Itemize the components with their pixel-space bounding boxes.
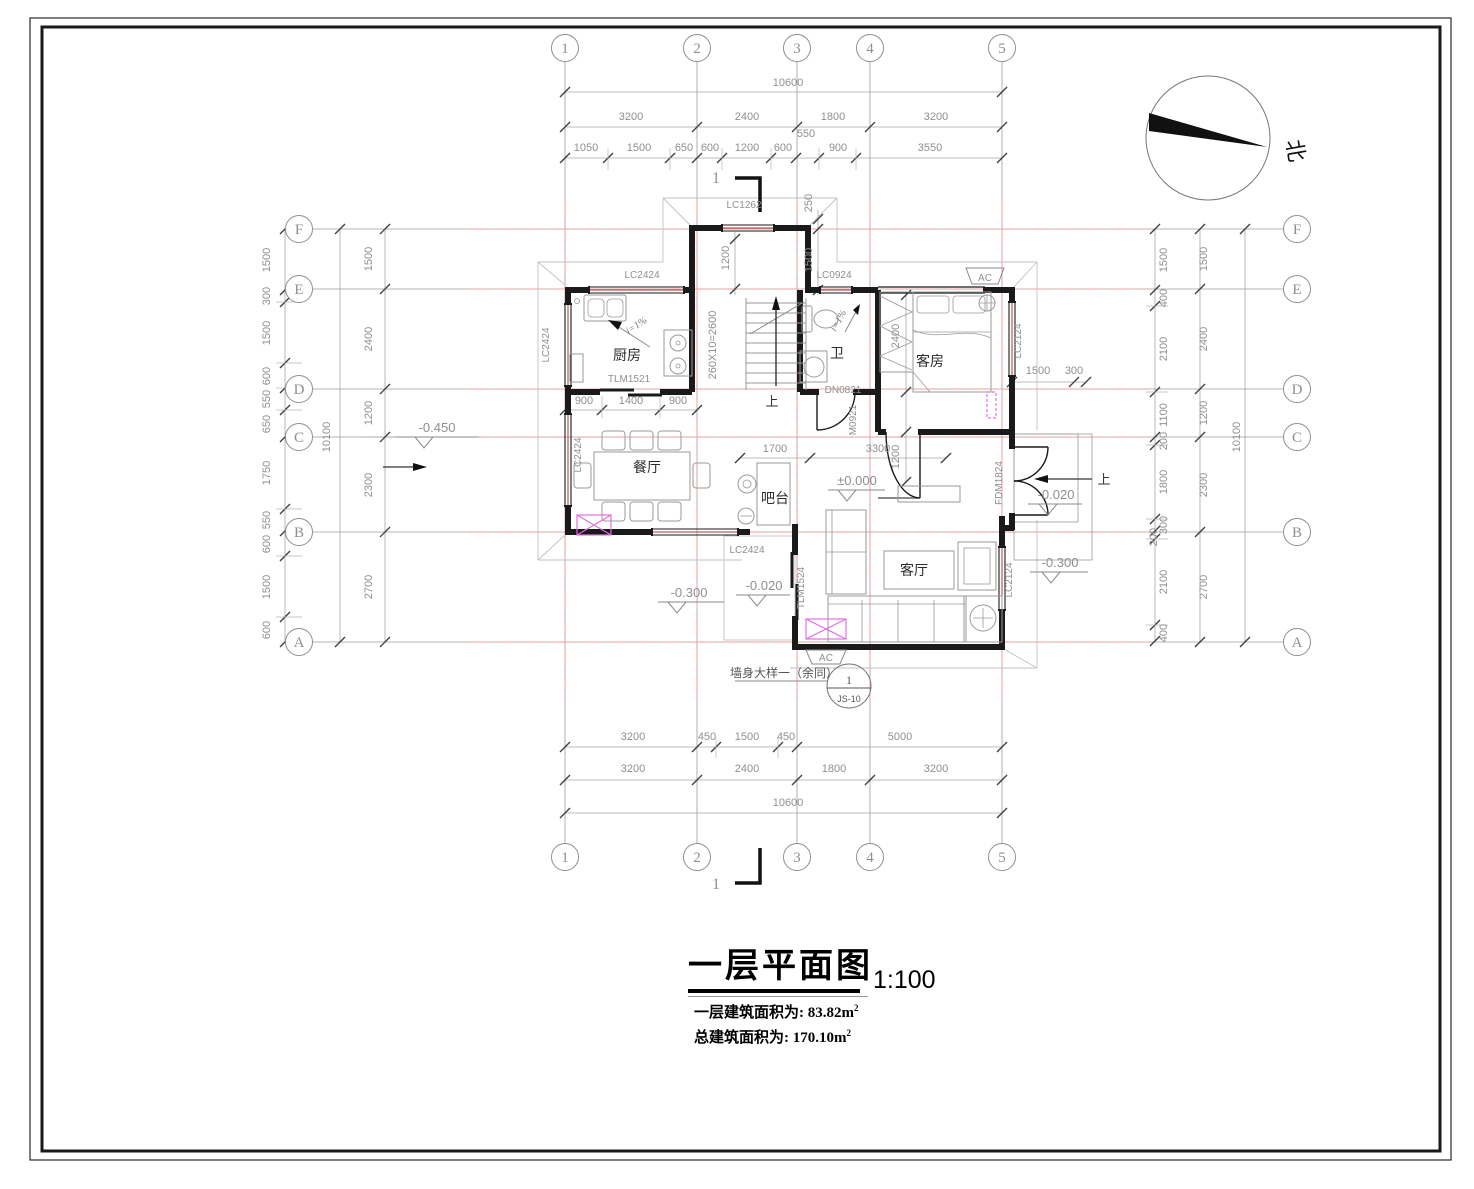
porch-up-arrow [1034, 475, 1092, 483]
dim: 1500 [735, 731, 759, 743]
dim: 900 [669, 395, 687, 407]
kitchen-fixtures [570, 295, 692, 382]
dim: 900 [575, 395, 593, 407]
room-label-guest: 客房 [916, 353, 944, 370]
dim: 3550 [918, 142, 942, 154]
dim: 550 [261, 390, 273, 408]
dim: 1200 [735, 142, 759, 154]
total-area-text: 总建筑面积为: 170.10m2 [694, 1026, 1108, 1047]
dim: 1500 [261, 575, 273, 599]
windows [564, 224, 1016, 610]
dim: 300 [1065, 365, 1083, 377]
dim: 1200 [720, 246, 732, 270]
level-minus-0020-terrace [736, 595, 790, 606]
grid-bubble-E-left: E [294, 282, 303, 298]
room-label-bar: 吧台 [761, 491, 789, 507]
total-area-value: 总建筑面积为: 170.10m [694, 1030, 847, 1046]
window-LC2424-kitchen-west [564, 304, 572, 386]
dim: 600 [261, 367, 273, 385]
dim: 2400 [735, 763, 759, 775]
dim-stair-run: 260X10=2600 [707, 311, 719, 380]
dining-furniture [574, 431, 710, 521]
grid-bubble-4-bottom: 4 [866, 850, 874, 866]
label-LC0924: LC0924 [816, 270, 851, 281]
dim: 3200 [621, 763, 645, 775]
callout-text: 墙身大样一（余同） [730, 665, 838, 680]
dim: 1750 [261, 461, 273, 485]
grid-bubble-2-top: 2 [693, 41, 701, 57]
dim: 3200 [924, 763, 948, 775]
window-LC2424-dining-west [564, 414, 572, 506]
dim-right-total: 10100 [1231, 422, 1243, 453]
level-text-0450: -0.450 [419, 420, 456, 435]
dim: 600 [701, 142, 719, 154]
grid-bubble-A-left: A [294, 635, 305, 651]
title-underline-thin [688, 996, 868, 997]
label-LC2424: LC2424 [573, 437, 584, 472]
slope-label: i=1% [624, 315, 649, 337]
title-underline [688, 989, 860, 993]
dim: 1200 [890, 445, 902, 469]
title-block: 一层平面图 1:100 一层建筑面积为: 83.82m2 总建筑面积为: 170… [688, 938, 1108, 1047]
dim: 1400 [619, 395, 643, 407]
dim: 1100 [1158, 403, 1170, 427]
dim: 2400 [1198, 327, 1210, 351]
drawing-scale: 1:100 [873, 966, 936, 995]
level-minus-0300-right [1030, 572, 1088, 583]
dim: 2100 [1158, 337, 1170, 361]
drawing-title: 一层平面图 [688, 938, 873, 987]
dim-left-total: 10100 [321, 422, 333, 453]
dim: 200 [1158, 432, 1170, 450]
label-TLM1524: TLM1524 [796, 566, 807, 609]
dim: 650 [261, 415, 273, 433]
grid-bubble-2-bottom: 2 [693, 850, 701, 866]
dim: 1800 [822, 763, 846, 775]
dim: 1500 [803, 248, 815, 272]
grid-bubble-1-top: 1 [561, 41, 569, 57]
dim: 400 [1158, 289, 1170, 307]
dim: 1800 [821, 111, 845, 123]
level-text-0300: -0.300 [671, 585, 708, 600]
grid-bubble-B-right: B [1292, 525, 1302, 541]
section-number-top: 1 [712, 170, 720, 187]
level-text-0020: -0.020 [1038, 487, 1075, 502]
callout-number: 1 [846, 673, 852, 687]
dim: 3200 [619, 111, 643, 123]
grid-bubble-4-top: 4 [866, 41, 874, 57]
grid-bubble-5-bottom: 5 [998, 850, 1006, 866]
window-LC1262 [722, 224, 774, 232]
label-M0921: M0921 [848, 404, 859, 435]
room-label-bath: 卫 [830, 347, 844, 362]
grid-bubble-3-bottom: 3 [793, 850, 801, 866]
dim: 550 [261, 511, 273, 529]
grid-bubble-A-right: A [1292, 635, 1303, 651]
grid-bubble-3-top: 3 [793, 41, 801, 57]
section-number-bottom: 1 [712, 876, 720, 893]
grid-bubble-D-right: D [1292, 382, 1303, 398]
label-AC-bottom: AC [819, 653, 833, 664]
label-TLM1521: TLM1521 [608, 374, 651, 385]
dim: 450 [777, 731, 795, 743]
callout-sheet: JS-10 [837, 694, 861, 704]
dim: 1500 [1158, 248, 1170, 272]
grid-bubble-5-top: 5 [998, 41, 1006, 57]
bathroom-fixtures [800, 304, 860, 382]
dim: 600 [261, 535, 273, 553]
dim: 2400 [363, 327, 375, 351]
ac-outdoor-unit-living [806, 619, 846, 639]
room-label-living: 客厅 [900, 562, 928, 579]
dim: 1700 [763, 443, 787, 455]
dim: 200 [1148, 528, 1160, 546]
dim: 550 [797, 128, 815, 140]
grid-bubble-E-right: E [1292, 282, 1301, 298]
north-arrow-icon [1146, 76, 1270, 200]
window-LC2424-kitchen-north [589, 286, 684, 294]
entry-arrow-left [383, 463, 427, 471]
dim: 1200 [1198, 401, 1210, 425]
grid-lines [313, 62, 1283, 843]
dim: 1500 [261, 248, 273, 272]
total-area-sup: 2 [847, 1028, 852, 1038]
label-FDM1824: FDM1824 [994, 461, 1005, 505]
level-minus-0300-left [658, 602, 724, 613]
grid-bubble-B-left: B [294, 525, 304, 541]
dim: 1800 [1158, 470, 1170, 494]
label-LC1262: LC1262 [726, 200, 761, 211]
dim: 300 [261, 287, 273, 305]
dim: 1200 [363, 401, 375, 425]
dim: 2700 [1198, 575, 1210, 599]
room-label-kitchen: 厨房 [613, 348, 641, 364]
porch-up-label: 上 [1097, 472, 1110, 487]
grid-bubble-C-right: C [1292, 430, 1302, 446]
dim: 250 [803, 194, 815, 212]
guest-furniture [880, 292, 995, 502]
label-AC-top: AC [978, 273, 992, 284]
dim: 2300 [1198, 473, 1210, 497]
dim: 2400 [890, 324, 902, 348]
dim: 2400 [735, 111, 759, 123]
dim: 600 [774, 142, 792, 154]
level-text-0000: ±0.000 [837, 473, 877, 488]
dim: 2100 [1158, 570, 1170, 594]
level-minus-0020-porch [1028, 504, 1082, 515]
drawing-sheet: 1 2 3 4 5 1 2 3 4 5 F E D C B A F E D C … [0, 0, 1474, 1189]
dim: 3200 [621, 731, 645, 743]
doors [600, 390, 1048, 620]
dim: 450 [698, 731, 716, 743]
dim: 900 [829, 142, 847, 154]
dim: 3300 [866, 443, 890, 455]
dim: 650 [675, 142, 693, 154]
label-LC2424: LC2424 [624, 270, 659, 281]
dim: 1500 [261, 321, 273, 345]
label-LC2424: LC2424 [729, 545, 764, 556]
label-LC2424: LC2424 [541, 327, 552, 362]
floor-area-value: 一层建筑面积为: 83.82m [694, 1005, 854, 1021]
dim: 2300 [363, 473, 375, 497]
floor-area-sup: 2 [854, 1003, 859, 1013]
dim: 1500 [1026, 365, 1050, 377]
dim: 2700 [363, 575, 375, 599]
dim: 600 [261, 621, 273, 639]
dim: 400 [1158, 624, 1170, 642]
dim: 5000 [888, 731, 912, 743]
level-markers [383, 437, 1092, 613]
level-text-0300: -0.300 [1042, 555, 1079, 570]
level-text-0020: -0.020 [746, 578, 783, 593]
stair-up-label: 上 [765, 394, 778, 409]
dim: 1050 [574, 142, 598, 154]
level-minus-0450 [395, 437, 478, 448]
dim: 3200 [924, 111, 948, 123]
label-LC2124: LC2124 [1004, 562, 1015, 597]
label-LC2124: LC2124 [1013, 323, 1024, 358]
level-plus-0000 [828, 490, 885, 501]
grid-bubble-F-right: F [1293, 222, 1301, 238]
grid-bubble-D-left: D [294, 382, 305, 398]
label-DN0821: DN0821 [825, 385, 862, 396]
room-label-dining: 餐厅 [633, 460, 661, 476]
dim-bottom-total: 10600 [773, 797, 804, 809]
grid-bubble-C-left: C [294, 430, 304, 446]
window-LC2424-dining-south [652, 528, 738, 536]
dim: 1500 [627, 142, 651, 154]
window-LC0924 [820, 286, 852, 294]
grid-bubble-1-bottom: 1 [561, 850, 569, 866]
floor-area-text: 一层建筑面积为: 83.82m2 [694, 1001, 1108, 1022]
dim: 1500 [363, 247, 375, 271]
dim-top-total: 10600 [773, 77, 804, 89]
dim: 1500 [1198, 247, 1210, 271]
north-label: 北 [1281, 138, 1309, 164]
grid-bubble-F-left: F [295, 222, 303, 238]
